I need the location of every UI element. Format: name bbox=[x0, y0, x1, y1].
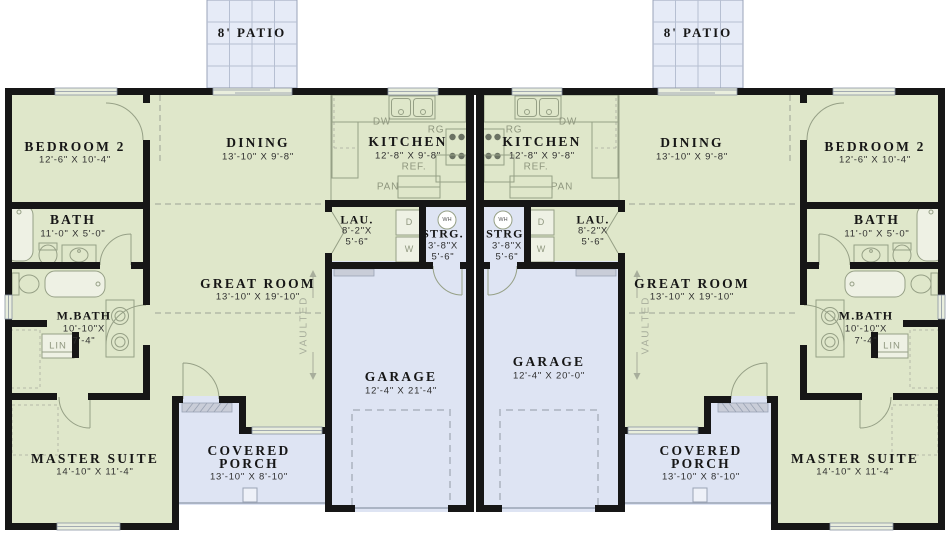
storage-name-left: STRG. bbox=[422, 227, 464, 242]
washer-label-right: W bbox=[537, 244, 546, 254]
storage-dim1-left: 3'-8"X bbox=[428, 241, 458, 252]
great-room-dims-right: 13'-10" X 19'-10" bbox=[650, 292, 734, 303]
laundry-dim2-left: 5'-6" bbox=[346, 237, 369, 248]
kitchen-name-left: KITCHEN bbox=[368, 134, 447, 150]
bath-dims-right: 11'-0" X 5'-0" bbox=[844, 229, 909, 240]
range-label-right: RG bbox=[506, 125, 523, 136]
dining-name-left: DINING bbox=[226, 135, 289, 151]
linen-label-left: LIN bbox=[49, 341, 67, 352]
laundry-dim1-left: 8'-2"X bbox=[342, 226, 372, 237]
great-room-dims-left: 13'-10" X 19'-10" bbox=[216, 292, 300, 303]
porch-line2-right: PORCH bbox=[671, 456, 731, 472]
patio-door bbox=[213, 88, 292, 95]
kitchen-dims-left: 12'-8" X 9'-8" bbox=[375, 151, 441, 162]
bath-dims-left: 11'-0" X 5'-0" bbox=[40, 229, 105, 240]
vaulted-label-right: VAULTED bbox=[641, 296, 652, 355]
patio-label-left: 8' PATIO bbox=[218, 25, 287, 41]
dryer-label-right: D bbox=[538, 217, 545, 227]
patio-label-right: 8' PATIO bbox=[664, 25, 733, 41]
porch-dims-left: 13'-10" X 8'-10" bbox=[210, 472, 288, 483]
great-room-name-right: GREAT ROOM bbox=[634, 276, 750, 292]
party-wall-top bbox=[466, 88, 484, 95]
storage-dim1-right: 3'-8"X bbox=[492, 241, 522, 252]
dishwasher-label-left: DW bbox=[373, 117, 391, 128]
bedroom2-name-left: BEDROOM 2 bbox=[24, 139, 125, 155]
master-bath-dim2-left: 7'-4" bbox=[73, 336, 96, 347]
garage-name-left: GARAGE bbox=[365, 369, 437, 385]
kitchen-name-right: KITCHEN bbox=[502, 134, 581, 150]
dining-name-right: DINING bbox=[660, 135, 723, 151]
range-label-left: RG bbox=[428, 125, 445, 136]
storage-name-right: STRG. bbox=[486, 227, 528, 242]
refrigerator-label-left: REF. bbox=[402, 162, 427, 173]
master-bath-dim1-left: 10'-10"X bbox=[63, 324, 105, 335]
master-bath-name-right: M.BATH bbox=[839, 309, 894, 324]
dishwasher-label-right: DW bbox=[559, 117, 577, 128]
master-suite-name-right: MASTER SUITE bbox=[791, 451, 919, 467]
refrigerator-label-right: REF. bbox=[524, 162, 549, 173]
kitchen-dims-right: 12'-8" X 9'-8" bbox=[509, 151, 575, 162]
bedroom2-dims-right: 12'-6" X 10'-4" bbox=[839, 155, 911, 166]
great-room-name-left: GREAT ROOM bbox=[200, 276, 316, 292]
pantry-label-left: PAN bbox=[377, 182, 399, 193]
dryer-label-left: D bbox=[406, 217, 413, 227]
dining-dims-left: 13'-10" X 9'-8" bbox=[222, 152, 294, 163]
porch-line2-left: PORCH bbox=[219, 456, 279, 472]
floor-plan-canvas: 8' PATIO BEDROOM 2 12'-6" X 10'-4" DININ… bbox=[0, 0, 950, 537]
bath-name-right: BATH bbox=[854, 212, 900, 228]
garage-name-right: GARAGE bbox=[513, 354, 585, 370]
vaulted-label-left: VAULTED bbox=[299, 296, 310, 355]
master-suite-name-left: MASTER SUITE bbox=[31, 451, 159, 467]
storage-dim2-left: 5'-6" bbox=[432, 252, 455, 263]
laundry-dim1-right: 8'-2"X bbox=[578, 226, 608, 237]
water-heater-label-left: WH bbox=[442, 217, 451, 223]
porch-dims-right: 13'-10" X 8'-10" bbox=[662, 472, 740, 483]
storage-dim2-right: 5'-6" bbox=[496, 252, 519, 263]
washer-label-left: W bbox=[405, 244, 414, 254]
garage-dims-left: 12'-4" X 21'-4" bbox=[365, 386, 437, 397]
linen-label-right: LIN bbox=[883, 341, 901, 352]
garage-dims-right: 12'-4" X 20'-0" bbox=[513, 371, 585, 382]
master-suite-dims-left: 14'-10" X 11'-4" bbox=[56, 467, 133, 478]
bedroom2-dims-left: 12'-6" X 10'-4" bbox=[39, 155, 111, 166]
bath-name-left: BATH bbox=[50, 212, 96, 228]
master-suite-dims-right: 14'-10" X 11'-4" bbox=[816, 467, 893, 478]
bedroom2-name-right: BEDROOM 2 bbox=[824, 139, 925, 155]
master-bath-name-left: M.BATH bbox=[57, 309, 112, 324]
master-bath-dim1-right: 10'-10"X bbox=[845, 324, 887, 335]
dining-dims-right: 13'-10" X 9'-8" bbox=[656, 152, 728, 163]
water-heater-label-right: WH bbox=[498, 217, 507, 223]
master-bath-dim2-right: 7'-4" bbox=[855, 336, 878, 347]
laundry-dim2-right: 5'-6" bbox=[582, 237, 605, 248]
pantry-label-right: PAN bbox=[551, 182, 573, 193]
